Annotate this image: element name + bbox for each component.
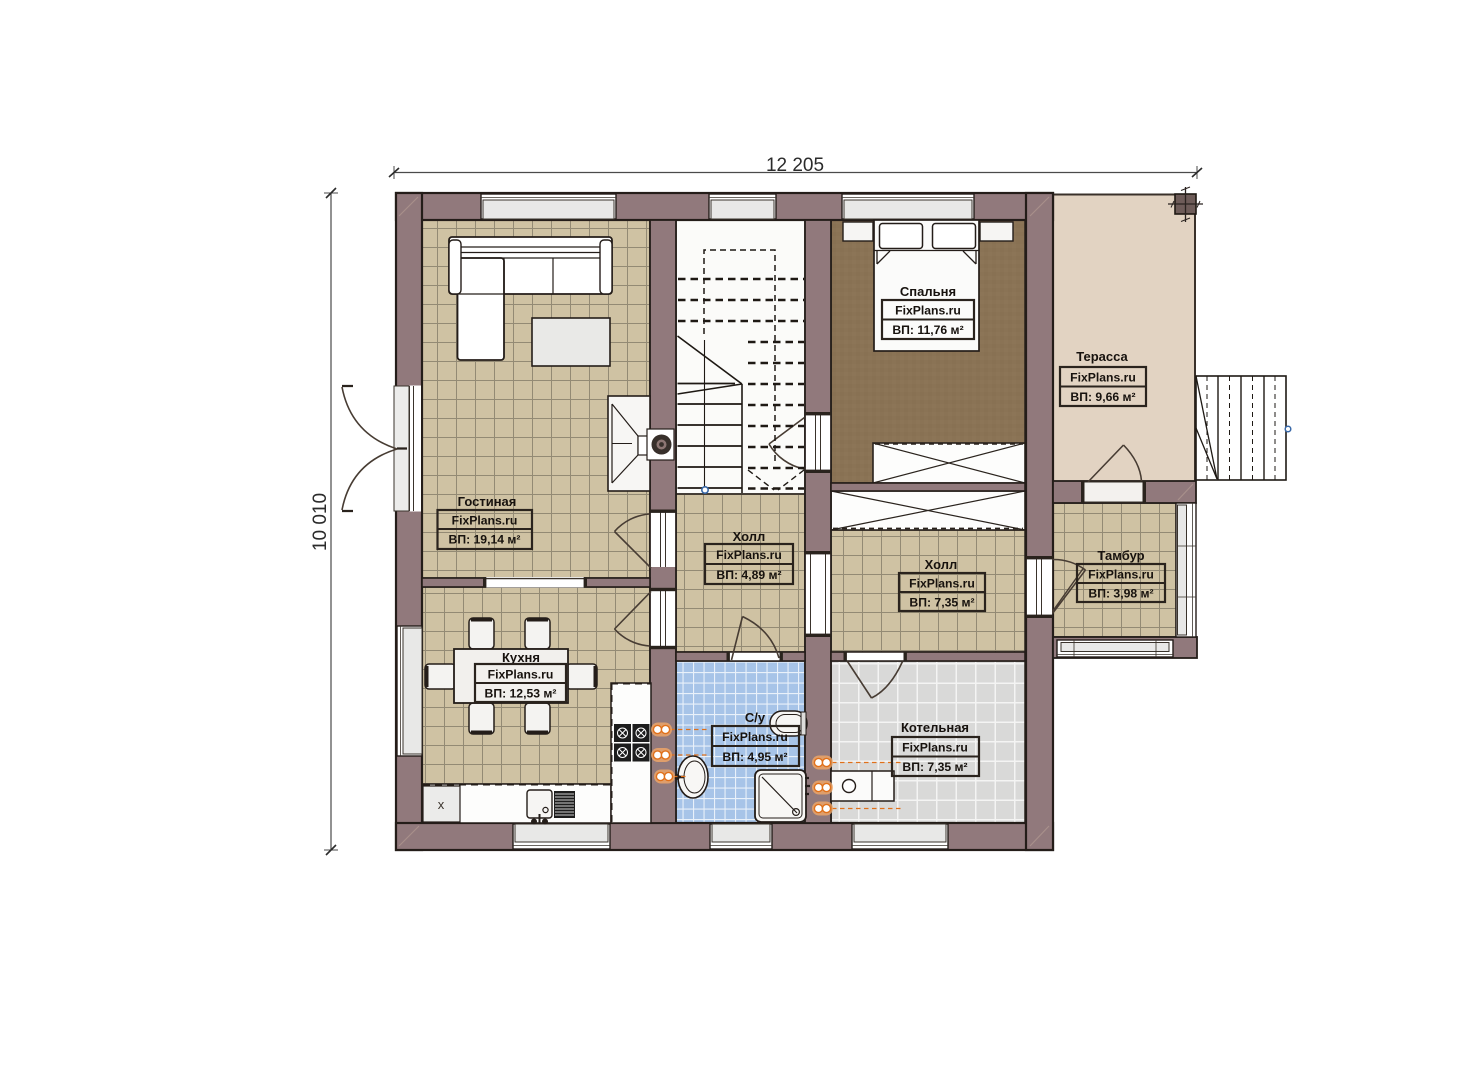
svg-text:10 010: 10 010 [310,493,331,551]
svg-text:x: x [438,797,445,812]
svg-text:FixPlans.ru: FixPlans.ru [1070,371,1136,385]
svg-text:FixPlans.ru: FixPlans.ru [902,741,968,755]
svg-text:С/у: С/у [745,710,766,725]
svg-text:ВП: 9,66 м²: ВП: 9,66 м² [1070,390,1135,404]
svg-text:ВП: 7,35 м²: ВП: 7,35 м² [909,596,974,610]
svg-text:Терасса: Терасса [1076,349,1128,364]
svg-text:ВП: 7,35 м²: ВП: 7,35 м² [902,760,967,774]
svg-text:ВП: 12,53 м²: ВП: 12,53 м² [485,687,557,701]
svg-text:FixPlans.ru: FixPlans.ru [488,668,554,682]
svg-text:FixPlans.ru: FixPlans.ru [716,548,782,562]
svg-text:12 205: 12 205 [766,155,824,176]
svg-text:ВП: 3,98 м²: ВП: 3,98 м² [1088,587,1153,601]
svg-text:FixPlans.ru: FixPlans.ru [452,514,518,528]
svg-text:ВП: 11,76 м²: ВП: 11,76 м² [892,323,963,337]
svg-text:FixPlans.ru: FixPlans.ru [895,304,961,318]
svg-text:Холл: Холл [925,557,958,572]
svg-text:FixPlans.ru: FixPlans.ru [722,730,788,744]
svg-text:ВП: 19,14 м²: ВП: 19,14 м² [449,533,521,547]
svg-text:Спальня: Спальня [900,284,956,299]
svg-text:FixPlans.ru: FixPlans.ru [1088,568,1154,582]
svg-text:Тамбур: Тамбур [1097,548,1144,563]
svg-text:ВП: 4,89 м²: ВП: 4,89 м² [716,568,781,582]
svg-text:ВП: 4,95 м²: ВП: 4,95 м² [722,750,787,764]
svg-text:Котельная: Котельная [901,720,969,735]
svg-text:Кухня: Кухня [502,650,540,665]
svg-text:Гостиная: Гостиная [458,494,517,509]
svg-text:FixPlans.ru: FixPlans.ru [909,577,975,591]
svg-text:Холл: Холл [733,529,766,544]
